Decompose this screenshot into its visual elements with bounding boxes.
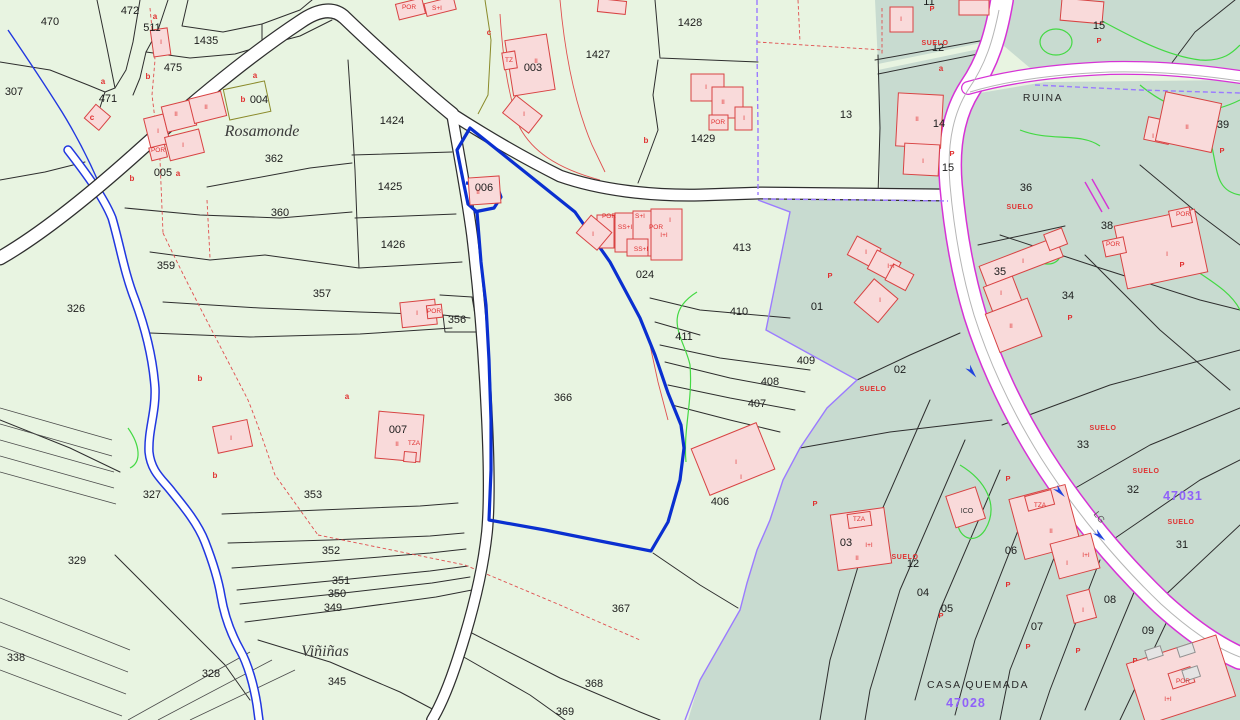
parcel-number-label: 01 [811, 301, 823, 313]
map-annotation-label: I [1066, 560, 1068, 567]
map-annotation-label: II [721, 99, 725, 106]
map-annotation-label: POR [1106, 241, 1120, 248]
parcel-number-label: 362 [265, 153, 283, 165]
map-annotation-label: P [1067, 313, 1072, 322]
parcel-number-label: 471 [99, 93, 117, 105]
map-annotation-label: POR [402, 4, 416, 11]
map-annotation-label: P [1005, 474, 1010, 483]
map-annotation-label: SUELO [1167, 519, 1194, 526]
parcel-number-label: 329 [68, 555, 86, 567]
map-annotation-label: SS+I [618, 224, 632, 231]
parcel-number-label: 369 [556, 706, 574, 718]
map-annotation-label: P [1075, 646, 1080, 655]
parcel-number-label: 33 [1077, 439, 1089, 451]
parcel-number-label: 470 [41, 16, 59, 28]
map-annotation-label: I [705, 84, 707, 91]
map-annotation-label: a [176, 169, 181, 178]
map-annotation-label: II [1049, 528, 1053, 535]
map-annotation-label: a [345, 392, 350, 401]
map-annotation-label: I+I [1164, 696, 1172, 703]
parcel-number-label: 32 [1127, 484, 1139, 496]
map-annotation-label: II [204, 104, 208, 111]
map-annotation-label: I [1152, 133, 1154, 140]
map-annotation-label: SUELO [1132, 468, 1159, 475]
parcel-number-label: 351 [332, 575, 350, 587]
map-annotation-label: P [929, 4, 934, 13]
parcel-number-label: 356 [448, 314, 466, 326]
parcel-number-label: 15 [942, 162, 954, 174]
map-annotation-label: II [476, 189, 480, 196]
map-annotation-label: b [130, 174, 135, 183]
place-name-label: Rosamonde [224, 123, 300, 140]
parcel-number-label: 366 [554, 392, 572, 404]
parcel-number-label: 408 [761, 376, 779, 388]
map-annotation-label: SUELO [921, 40, 948, 47]
map-annotation-label: II [915, 116, 919, 123]
map-annotation-label: P [827, 271, 832, 280]
parcel-number-label: 14 [933, 118, 945, 130]
map-annotation-label: b [644, 136, 649, 145]
parcel-number-label: 349 [324, 602, 342, 614]
parcel-number-label: 406 [711, 496, 729, 508]
map-annotation-label: II [534, 58, 538, 65]
parcel-number-label: 35 [994, 266, 1006, 278]
map-annotation-label: I [922, 158, 924, 165]
map-annotation-label: SUELO [1006, 204, 1033, 211]
cadastral-map-canvas[interactable]: 4704725111435475471307004005362360142414… [0, 0, 1240, 720]
parcel-number-label: 350 [328, 588, 346, 600]
map-annotation-label: a [253, 71, 258, 80]
parcel-number-label: 413 [733, 242, 751, 254]
map-annotation-label: SUELO [891, 554, 918, 561]
map-annotation-label: I [592, 231, 594, 238]
parcel-number-label: 345 [328, 676, 346, 688]
map-annotation-label: I+I [887, 263, 895, 270]
parcel-number-label: 475 [164, 62, 182, 74]
map-annotation-label: I [182, 142, 184, 149]
parcel-number-label: 409 [797, 355, 815, 367]
map-annotation-label: P [1219, 146, 1224, 155]
map-annotation-label: II [855, 555, 859, 562]
parcel-number-label: 326 [67, 303, 85, 315]
map-annotation-label: TZ [505, 57, 513, 64]
parcel-number-label: 04 [917, 587, 929, 599]
parcel-number-label: 004 [250, 94, 268, 106]
map-annotation-label: I [865, 249, 867, 256]
map-annotation-label: POR [427, 308, 441, 315]
map-annotation-label: P [1132, 656, 1137, 665]
map-annotation-label: a [101, 77, 106, 86]
map-annotation-label: I [740, 474, 742, 481]
cadastral-reference-label: 47031 [1163, 489, 1203, 503]
map-annotation-label: SUELO [1089, 425, 1116, 432]
map-annotation-label: TZA [1034, 502, 1047, 509]
parcel-number-label: 06 [1005, 545, 1017, 557]
parcel-number-label: 352 [322, 545, 340, 557]
cadastral-reference-label: 47028 [946, 696, 986, 710]
parcel-number-label: 359 [157, 260, 175, 272]
parcel-number-label: 02 [894, 364, 906, 376]
map-annotation-label: I [1166, 251, 1168, 258]
map-annotation-label: POR [649, 224, 663, 231]
parcel-number-label: 1425 [378, 181, 402, 193]
map-annotation-label: II [395, 441, 399, 448]
parcel-number-label: 357 [313, 288, 331, 300]
map-annotation-label: I [735, 459, 737, 466]
parcel-number-label: 13 [840, 109, 852, 121]
map-annotation-label: II [1185, 124, 1189, 131]
parcel-number-label: 31 [1176, 539, 1188, 551]
map-annotation-label: I [900, 16, 902, 23]
parcel-number-label: 328 [202, 668, 220, 680]
parcel-number-label: 410 [730, 306, 748, 318]
parcel-number-label: 1427 [586, 49, 610, 61]
parcel-number-label: 34 [1062, 290, 1074, 302]
map-annotation-label: a [153, 12, 158, 21]
parcel-number-label: 307 [5, 86, 23, 98]
parcel-number-label: 472 [121, 5, 139, 17]
map-annotation-label: S+I [635, 213, 645, 220]
parcel-number-label: 36 [1020, 182, 1032, 194]
parcel-number-label: 338 [7, 652, 25, 664]
map-annotation-label: I [160, 39, 162, 46]
map-annotation-label: P [949, 149, 954, 158]
map-annotation-label: I+I [865, 542, 873, 549]
map-annotation-label: I [1000, 290, 1002, 297]
map-annotation-label: POR [1176, 678, 1190, 685]
cadastral-map-viewport[interactable]: 4704725111435475471307004005362360142414… [0, 0, 1240, 720]
parcel-number-label: 407 [748, 398, 766, 410]
map-annotation-label: P [1096, 36, 1101, 45]
map-annotation-label: I [157, 128, 159, 135]
map-annotation-label: I [879, 297, 881, 304]
map-annotation-label: I [230, 435, 232, 442]
map-annotation-label: P [938, 611, 943, 620]
map-annotation-label: TZA [408, 440, 421, 447]
map-annotation-label: I [669, 217, 671, 224]
parcel-number-label: 15 [1093, 20, 1105, 32]
parcel-number-label: 1428 [678, 17, 702, 29]
map-annotation-label: I [1082, 607, 1084, 614]
parcel-number-label: 1429 [691, 133, 715, 145]
map-annotation-label: POR [151, 147, 165, 154]
parcel-number-label: 1426 [381, 239, 405, 251]
map-annotation-label: TZA [853, 516, 866, 523]
parcel-number-label: 03 [840, 537, 852, 549]
map-annotation-label: ICO [961, 508, 974, 515]
parcel-number-label: 024 [636, 269, 654, 281]
map-annotation-label: I [743, 115, 745, 122]
map-annotation-label: I [416, 310, 418, 317]
map-annotation-label: I+I [660, 232, 668, 239]
parcel-number-label: 09 [1142, 625, 1154, 637]
map-annotation-label: II [1009, 323, 1013, 330]
map-annotation-label: P [1025, 642, 1030, 651]
map-annotation-label: II [174, 111, 178, 118]
parcel-number-label: 07 [1031, 621, 1043, 633]
place-name-label: CASA QUEMADA [927, 679, 1029, 691]
map-annotation-label: SUELO [859, 386, 886, 393]
map-annotation-label: I+I [1082, 552, 1090, 559]
place-name-label: Viñiñas [301, 643, 349, 660]
parcel-number-label: 360 [271, 207, 289, 219]
map-annotation-label: S+I [432, 5, 442, 12]
map-annotation-label: P [1179, 260, 1184, 269]
map-annotation-label: SS+I [634, 246, 648, 253]
map-annotation-label: b [198, 374, 203, 383]
parcel-number-label: 005 [154, 167, 172, 179]
map-annotation-label: c [487, 28, 492, 37]
map-annotation-label: b [241, 95, 246, 104]
parcel-number-label: 38 [1101, 220, 1113, 232]
map-annotation-label: I [1022, 258, 1024, 265]
parcel-number-label: 08 [1104, 594, 1116, 606]
parcel-number-label: 411 [675, 331, 693, 343]
map-annotation-label: POR [1176, 211, 1190, 218]
parcel-number-label: 353 [304, 489, 322, 501]
map-annotation-label: POR [711, 119, 725, 126]
map-annotation-label: a [939, 64, 944, 73]
parcel-number-label: 367 [612, 603, 630, 615]
parcel-number-label: 368 [585, 678, 603, 690]
map-annotation-label: P [1005, 580, 1010, 589]
map-annotation-label: POR [602, 213, 616, 220]
parcel-number-label: 1424 [380, 115, 404, 127]
parcel-number-label: 511 [143, 22, 161, 34]
parcel-number-label: 1435 [194, 35, 218, 47]
parcel-number-label: 327 [143, 489, 161, 501]
place-name-label: RUINA [1023, 92, 1063, 104]
map-annotation-label: P [812, 499, 817, 508]
map-annotation-label: b [146, 72, 151, 81]
map-annotation-label: I [523, 111, 525, 118]
parcel-number-label: 39 [1217, 119, 1229, 131]
map-annotation-label: c [90, 113, 95, 122]
map-annotation-label: b [213, 471, 218, 480]
parcel-number-label: 007 [389, 424, 407, 436]
parcel-number-label: 003 [524, 62, 542, 74]
